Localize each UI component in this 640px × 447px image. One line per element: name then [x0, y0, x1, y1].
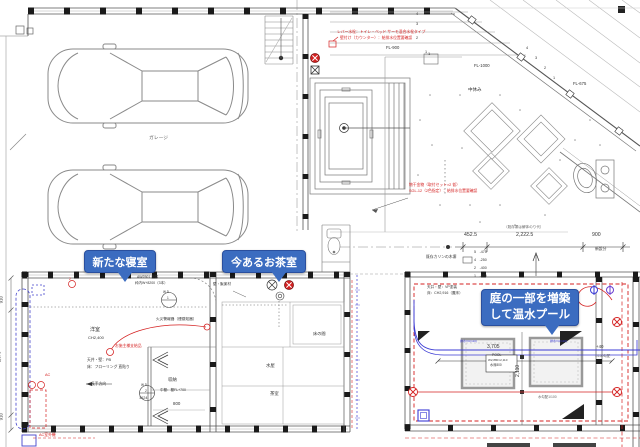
center-structure — [310, 78, 410, 194]
callout-new-bedroom-label: 新たな寝室 — [93, 254, 148, 270]
garden-steps-strip — [463, 253, 539, 276]
grid-point — [446, 245, 450, 249]
center-wall — [303, 14, 308, 230]
garage-cars — [48, 44, 248, 249]
callout-pool-extension: 庭の一部を増築 して温水プール — [481, 289, 579, 326]
plan-linework — [0, 0, 640, 447]
exterior-steps — [330, 12, 526, 55]
bedroom — [9, 272, 351, 446]
callout-existing-tearoom-label: 今あるお茶室 — [231, 254, 297, 270]
callout-pool-line2: して温水プール — [490, 308, 570, 324]
callout-tail — [544, 324, 560, 335]
callout-new-bedroom: 新たな寝室 — [84, 250, 156, 273]
tearoom — [222, 272, 360, 432]
floor-plan-canvas: レバー水栓：トイレ・ベッド サーモ混合水栓タイプ壁付け（カウンター）：給排水位置… — [0, 0, 640, 447]
dimension-line-top — [455, 242, 630, 252]
courtyard — [330, 54, 601, 232]
wash-basin — [570, 160, 614, 198]
callout-tail — [271, 271, 287, 282]
callout-pool-line1: 庭の一部を増築 — [490, 292, 571, 308]
callout-existing-tearoom: 今あるお茶室 — [222, 250, 306, 273]
callout-tail — [117, 271, 133, 282]
north-wall — [28, 6, 625, 36]
staircase — [265, 16, 293, 64]
